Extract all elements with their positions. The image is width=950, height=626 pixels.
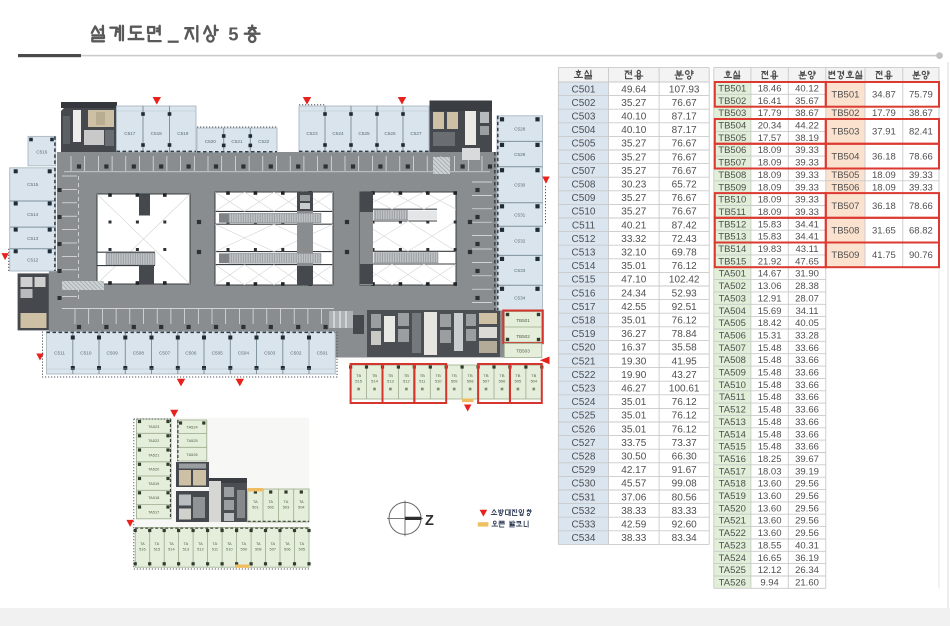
svg-text:18.42: 18.42: [758, 318, 782, 329]
svg-text:501: 501: [252, 505, 259, 510]
svg-text:C530: C530: [514, 183, 526, 188]
svg-text:18.25: 18.25: [758, 454, 782, 465]
svg-text:39.33: 39.33: [795, 158, 819, 169]
svg-text:36.19: 36.19: [795, 553, 819, 564]
svg-text:15.48: 15.48: [758, 355, 782, 366]
svg-text:39.19: 39.19: [795, 466, 819, 477]
svg-text:42.17: 42.17: [621, 465, 646, 476]
svg-text:TB513: TB513: [718, 232, 746, 243]
svg-text:16.37: 16.37: [621, 343, 646, 354]
svg-text:40.21: 40.21: [621, 220, 646, 231]
svg-text:TA517: TA517: [148, 509, 159, 514]
svg-text:TB507: TB507: [718, 158, 746, 169]
svg-text:TA520: TA520: [148, 467, 160, 472]
svg-text:C524: C524: [332, 131, 344, 136]
svg-text:TA: TA: [270, 541, 275, 546]
svg-text:33.66: 33.66: [795, 417, 819, 428]
svg-text:19.30: 19.30: [621, 356, 646, 367]
svg-text:72.43: 72.43: [672, 234, 697, 245]
svg-text:35.27: 35.27: [621, 152, 646, 163]
svg-text:C533: C533: [572, 520, 596, 531]
svg-text:90.76: 90.76: [909, 250, 933, 261]
svg-text:TB501: TB501: [516, 318, 530, 323]
svg-text:TB505: TB505: [831, 170, 859, 181]
svg-text:87.17: 87.17: [672, 112, 697, 123]
svg-text:TA: TA: [285, 541, 290, 546]
svg-text:C522: C522: [572, 370, 596, 381]
svg-text:C527: C527: [572, 438, 596, 449]
svg-text:TB: TB: [356, 373, 361, 378]
svg-text:33.66: 33.66: [795, 405, 819, 416]
svg-text:TA: TA: [198, 541, 203, 546]
svg-text:40.10: 40.10: [621, 112, 646, 123]
svg-text:18.46: 18.46: [758, 84, 782, 95]
svg-text:12.12: 12.12: [758, 565, 782, 576]
svg-text:511: 511: [419, 378, 426, 383]
svg-text:39.33: 39.33: [909, 182, 933, 193]
svg-text:C530: C530: [572, 479, 596, 490]
svg-text:100.61: 100.61: [669, 384, 700, 395]
svg-text:C507: C507: [572, 166, 596, 177]
svg-text:C534: C534: [572, 533, 596, 544]
svg-text:TA517: TA517: [719, 466, 746, 477]
svg-text:C513: C513: [572, 248, 596, 259]
svg-text:C504: C504: [238, 351, 250, 356]
svg-text:C532: C532: [572, 506, 596, 517]
svg-text:43.27: 43.27: [672, 370, 697, 381]
svg-text:18.09: 18.09: [758, 170, 782, 181]
svg-text:505: 505: [515, 378, 522, 383]
svg-text:TA523: TA523: [719, 540, 746, 551]
svg-text:TB: TB: [436, 373, 441, 378]
svg-text:504: 504: [530, 378, 537, 383]
svg-text:C520: C520: [205, 139, 217, 144]
svg-text:TB501: TB501: [718, 84, 746, 95]
svg-text:509: 509: [451, 378, 458, 383]
svg-text:C512: C512: [27, 258, 39, 263]
svg-text:39.33: 39.33: [795, 207, 819, 218]
svg-text:TA522: TA522: [148, 438, 159, 443]
svg-text:TB506: TB506: [718, 145, 746, 156]
svg-text:29.56: 29.56: [795, 528, 819, 539]
svg-text:49.64: 49.64: [621, 84, 646, 95]
svg-text:18.09: 18.09: [758, 207, 782, 218]
svg-text:15.83: 15.83: [758, 232, 782, 243]
svg-text:18.09: 18.09: [758, 195, 782, 206]
svg-text:41.75: 41.75: [872, 250, 896, 261]
svg-text:16.65: 16.65: [758, 553, 782, 564]
svg-text:513: 513: [183, 547, 190, 552]
svg-text:76.67: 76.67: [672, 152, 697, 163]
svg-text:87.17: 87.17: [672, 125, 697, 136]
svg-text:C528: C528: [572, 452, 596, 463]
svg-text:83.33: 83.33: [672, 506, 697, 517]
svg-text:39.33: 39.33: [795, 182, 819, 193]
svg-text:C505: C505: [212, 351, 224, 356]
svg-text:C531: C531: [514, 212, 526, 217]
svg-text:99.08: 99.08: [672, 479, 697, 490]
svg-text:30.50: 30.50: [621, 452, 646, 463]
svg-text:TA506: TA506: [719, 331, 746, 342]
svg-text:TB: TB: [483, 373, 488, 378]
svg-text:17.57: 17.57: [758, 133, 782, 144]
svg-text:C525: C525: [358, 131, 370, 136]
svg-text:29.56: 29.56: [795, 516, 819, 527]
svg-text:91.67: 91.67: [672, 465, 697, 476]
svg-text:C526: C526: [572, 424, 596, 435]
svg-text:TA519: TA519: [719, 491, 746, 502]
svg-text:32.10: 32.10: [621, 248, 646, 259]
svg-text:35.01: 35.01: [621, 261, 646, 272]
svg-text:C519: C519: [572, 329, 596, 340]
svg-text:C508: C508: [572, 180, 596, 191]
svg-text:29.56: 29.56: [795, 503, 819, 514]
svg-text:506: 506: [284, 547, 291, 552]
svg-text:66.30: 66.30: [672, 452, 697, 463]
svg-text:30.23: 30.23: [621, 180, 646, 191]
svg-text:35.27: 35.27: [621, 139, 646, 150]
svg-text:18.09: 18.09: [758, 182, 782, 193]
svg-text:78.66: 78.66: [909, 201, 933, 212]
svg-text:C532: C532: [514, 239, 526, 244]
svg-text:TB507: TB507: [831, 201, 859, 212]
svg-text:C524: C524: [572, 397, 596, 408]
svg-text:52.93: 52.93: [672, 288, 697, 299]
svg-text:C520: C520: [572, 343, 596, 354]
svg-text:514: 514: [168, 547, 175, 552]
svg-text:38.67: 38.67: [795, 108, 819, 119]
svg-text:TB504: TB504: [831, 151, 859, 162]
svg-text:38.67: 38.67: [909, 108, 933, 119]
svg-text:C516: C516: [572, 288, 596, 299]
svg-text:TB510: TB510: [718, 195, 746, 206]
svg-text:33.66: 33.66: [795, 429, 819, 440]
svg-text:42.55: 42.55: [621, 302, 646, 313]
svg-text:TB514: TB514: [718, 244, 746, 255]
svg-text:13.60: 13.60: [758, 528, 782, 539]
svg-text:69.78: 69.78: [672, 248, 697, 259]
svg-text:506: 506: [499, 378, 506, 383]
svg-text:38.19: 38.19: [795, 133, 819, 144]
svg-text:TA505: TA505: [719, 318, 746, 329]
svg-text:16.41: 16.41: [758, 96, 782, 107]
svg-text:13.60: 13.60: [758, 516, 782, 527]
svg-text:TB: TB: [372, 373, 377, 378]
svg-text:C518: C518: [572, 316, 596, 327]
svg-text:C507: C507: [159, 351, 171, 356]
svg-text:C526: C526: [384, 131, 396, 136]
svg-text:514: 514: [371, 378, 378, 383]
svg-text:TA: TA: [213, 541, 218, 546]
svg-text:39.33: 39.33: [795, 195, 819, 206]
svg-text:15.69: 15.69: [758, 306, 782, 317]
svg-text:TB: TB: [531, 373, 536, 378]
svg-text:20.34: 20.34: [758, 121, 782, 132]
svg-text:35.27: 35.27: [621, 166, 646, 177]
svg-text:TB506: TB506: [831, 182, 859, 193]
svg-text:28.07: 28.07: [795, 293, 819, 304]
svg-text:68.82: 68.82: [909, 226, 933, 237]
svg-text:34.87: 34.87: [872, 90, 896, 101]
svg-text:21.92: 21.92: [758, 256, 782, 267]
svg-text:34.11: 34.11: [795, 306, 818, 317]
svg-text:TA: TA: [253, 499, 258, 504]
svg-text:33.66: 33.66: [795, 380, 819, 391]
svg-text:TA524: TA524: [187, 425, 199, 430]
svg-text:C510: C510: [572, 207, 596, 218]
svg-text:C511: C511: [572, 220, 596, 231]
svg-text:13.06: 13.06: [758, 281, 782, 292]
svg-text:45.57: 45.57: [621, 479, 646, 490]
svg-text:C514: C514: [572, 261, 596, 272]
svg-text:31.65: 31.65: [872, 226, 896, 237]
svg-text:C523: C523: [306, 131, 318, 136]
svg-text:18.09: 18.09: [872, 182, 896, 193]
svg-text:TA508: TA508: [719, 355, 746, 366]
svg-text:92.60: 92.60: [672, 520, 697, 531]
svg-text:92.51: 92.51: [672, 302, 697, 313]
svg-text:15.48: 15.48: [758, 417, 782, 428]
svg-text:18.09: 18.09: [758, 145, 782, 156]
svg-text:510: 510: [435, 378, 442, 383]
svg-text:C505: C505: [572, 139, 596, 150]
svg-text:C502: C502: [572, 98, 596, 109]
svg-text:13.60: 13.60: [758, 491, 782, 502]
svg-text:76.67: 76.67: [672, 193, 697, 204]
svg-text:TA526: TA526: [719, 578, 746, 589]
svg-text:15.48: 15.48: [758, 429, 782, 440]
svg-text:TB505: TB505: [718, 133, 746, 144]
svg-text:C519: C519: [177, 131, 189, 136]
svg-text:15.48: 15.48: [758, 368, 782, 379]
svg-text:C529: C529: [572, 465, 596, 476]
svg-text:C534: C534: [514, 296, 526, 301]
svg-text:513: 513: [387, 378, 394, 383]
svg-text:15.48: 15.48: [758, 442, 782, 453]
svg-text:15.48: 15.48: [758, 392, 782, 403]
svg-text:33.66: 33.66: [795, 343, 819, 354]
svg-text:507: 507: [270, 547, 277, 552]
svg-text:39.33: 39.33: [795, 145, 819, 156]
svg-text:TA521: TA521: [148, 452, 159, 457]
svg-text:TA: TA: [241, 541, 246, 546]
svg-text:65.72: 65.72: [672, 180, 697, 191]
svg-text:TB503: TB503: [516, 349, 530, 354]
svg-text:83.34: 83.34: [672, 533, 697, 544]
svg-text:C511: C511: [54, 351, 65, 356]
svg-text:TA: TA: [184, 541, 189, 546]
svg-text:TB: TB: [515, 373, 520, 378]
svg-text:TB: TB: [452, 373, 457, 378]
svg-text:TA: TA: [299, 499, 304, 504]
svg-text:41.95: 41.95: [672, 356, 697, 367]
svg-text:C501: C501: [572, 84, 596, 95]
svg-text:TA525: TA525: [719, 565, 746, 576]
svg-text:107.93: 107.93: [669, 84, 700, 95]
svg-text:40.05: 40.05: [795, 318, 819, 329]
svg-text:TA515: TA515: [719, 442, 746, 453]
svg-text:35.67: 35.67: [795, 96, 819, 107]
svg-text:33.66: 33.66: [795, 442, 819, 453]
svg-text:TB: TB: [420, 373, 425, 378]
svg-text:34.41: 34.41: [795, 232, 819, 243]
svg-text:C527: C527: [410, 131, 422, 136]
svg-text:C510: C510: [80, 351, 92, 356]
svg-text:TB: TB: [468, 373, 473, 378]
svg-text:TA: TA: [268, 499, 273, 504]
svg-text:TA521: TA521: [719, 516, 746, 527]
svg-text:35.27: 35.27: [621, 193, 646, 204]
svg-text:17.79: 17.79: [758, 108, 782, 119]
svg-text:38.33: 38.33: [621, 533, 646, 544]
svg-text:C517: C517: [124, 131, 136, 136]
svg-text:TB502: TB502: [718, 96, 746, 107]
svg-text:40.31: 40.31: [795, 540, 819, 551]
svg-text:12.91: 12.91: [758, 293, 782, 304]
svg-text:C512: C512: [572, 234, 596, 245]
svg-text:80.56: 80.56: [672, 492, 697, 503]
svg-text:TA522: TA522: [719, 528, 746, 539]
svg-text:504: 504: [298, 505, 305, 510]
svg-text:33.66: 33.66: [795, 392, 819, 403]
svg-text:46.27: 46.27: [621, 384, 646, 395]
svg-text:C514: C514: [27, 212, 39, 217]
svg-text:76.67: 76.67: [672, 166, 697, 177]
svg-text:TA: TA: [169, 541, 174, 546]
svg-text:C501: C501: [317, 351, 329, 356]
svg-text:TA509: TA509: [719, 368, 746, 379]
svg-text:TB502: TB502: [516, 334, 530, 339]
svg-text:C509: C509: [106, 351, 118, 356]
svg-text:C506: C506: [572, 152, 596, 163]
svg-text:TA524: TA524: [719, 553, 746, 564]
svg-text:5: 5: [228, 24, 238, 45]
svg-text:19.90: 19.90: [621, 370, 646, 381]
svg-text:78.66: 78.66: [909, 151, 933, 162]
svg-text:TA511: TA511: [719, 392, 746, 403]
svg-text:44.22: 44.22: [795, 121, 819, 132]
svg-text:TA512: TA512: [719, 405, 746, 416]
svg-text:40.12: 40.12: [795, 84, 819, 95]
svg-text:TB504: TB504: [718, 121, 746, 132]
svg-text:76.67: 76.67: [672, 207, 697, 218]
svg-text:TB508: TB508: [831, 226, 859, 237]
svg-text:13.60: 13.60: [758, 503, 782, 514]
svg-text:35.27: 35.27: [621, 98, 646, 109]
svg-text:502: 502: [267, 505, 274, 510]
svg-text:34.41: 34.41: [795, 219, 819, 230]
svg-text:TA: TA: [256, 541, 261, 546]
svg-text:TB509: TB509: [718, 182, 746, 193]
svg-text:TA501: TA501: [719, 269, 746, 280]
svg-text:9.94: 9.94: [760, 578, 779, 589]
svg-text:TA523: TA523: [148, 424, 159, 429]
svg-text:511: 511: [212, 547, 218, 552]
svg-text:36.18: 36.18: [872, 151, 896, 162]
svg-text:35.01: 35.01: [621, 424, 646, 435]
svg-text:36.27: 36.27: [621, 329, 646, 340]
svg-text:15.31: 15.31: [758, 331, 782, 342]
svg-text:102.42: 102.42: [669, 275, 700, 286]
svg-text:15.83: 15.83: [758, 219, 782, 230]
svg-text:TB508: TB508: [718, 170, 746, 181]
svg-text:33.75: 33.75: [621, 438, 646, 449]
svg-text:38.33: 38.33: [621, 506, 646, 517]
svg-text:18.09: 18.09: [872, 170, 896, 181]
svg-text:C531: C531: [572, 492, 596, 503]
svg-text:512: 512: [197, 547, 204, 552]
svg-text:TB515: TB515: [718, 256, 746, 267]
svg-text:76.67: 76.67: [672, 98, 697, 109]
svg-text:15.48: 15.48: [758, 380, 782, 391]
svg-text:78.84: 78.84: [672, 329, 697, 340]
svg-text:33.28: 33.28: [795, 331, 819, 342]
svg-text:C521: C521: [572, 356, 596, 367]
svg-text:C517: C517: [572, 302, 596, 313]
svg-text:515: 515: [154, 547, 161, 552]
svg-text:TA: TA: [227, 541, 232, 546]
svg-text:40.10: 40.10: [621, 125, 646, 136]
svg-text:47.65: 47.65: [795, 256, 819, 267]
svg-text:TB509: TB509: [831, 250, 859, 261]
svg-text:TB503: TB503: [718, 108, 746, 119]
svg-text:18.03: 18.03: [758, 466, 782, 477]
svg-text:87.42: 87.42: [672, 220, 697, 231]
svg-text:13.60: 13.60: [758, 479, 782, 490]
svg-text:19.83: 19.83: [758, 244, 782, 255]
svg-text:37.91: 37.91: [872, 127, 896, 138]
svg-text:18.09: 18.09: [758, 158, 782, 169]
svg-text:14.67: 14.67: [758, 269, 782, 280]
svg-text:TA504: TA504: [719, 306, 746, 317]
svg-text:TA526: TA526: [187, 452, 198, 457]
svg-text:503: 503: [283, 505, 290, 510]
svg-text:C504: C504: [572, 125, 596, 136]
svg-text:76.67: 76.67: [672, 139, 697, 150]
svg-text:TB512: TB512: [718, 219, 746, 230]
svg-text:35.27: 35.27: [621, 207, 646, 218]
svg-text:15.48: 15.48: [758, 405, 782, 416]
svg-text:TA510: TA510: [719, 380, 746, 391]
svg-text:C508: C508: [133, 351, 145, 356]
svg-text:TA: TA: [155, 541, 160, 546]
svg-text:17.79: 17.79: [872, 108, 896, 119]
svg-text:39.33: 39.33: [795, 170, 819, 181]
svg-text:31.90: 31.90: [795, 269, 819, 280]
svg-text:39.33: 39.33: [909, 170, 933, 181]
svg-text:82.41: 82.41: [909, 127, 933, 138]
svg-text:29.56: 29.56: [795, 491, 819, 502]
svg-text:TB: TB: [388, 373, 393, 378]
svg-text:76.12: 76.12: [672, 411, 697, 422]
svg-text:508: 508: [467, 378, 474, 383]
svg-text:C525: C525: [572, 411, 596, 422]
svg-text:TB: TB: [404, 373, 409, 378]
svg-text:TA: TA: [299, 541, 304, 546]
svg-text:TB503: TB503: [831, 127, 859, 138]
svg-text:Z: Z: [425, 513, 434, 529]
svg-text:47.10: 47.10: [621, 275, 646, 286]
svg-text:C529: C529: [514, 152, 526, 157]
svg-text:35.58: 35.58: [672, 343, 697, 354]
svg-text:516: 516: [139, 547, 146, 552]
svg-text:C528: C528: [514, 126, 526, 131]
svg-text:TA502: TA502: [719, 281, 746, 292]
svg-text:75.79: 75.79: [909, 90, 933, 101]
svg-text:TB511: TB511: [719, 207, 746, 218]
svg-text:TA507: TA507: [719, 343, 746, 354]
svg-text:33.32: 33.32: [621, 234, 646, 245]
